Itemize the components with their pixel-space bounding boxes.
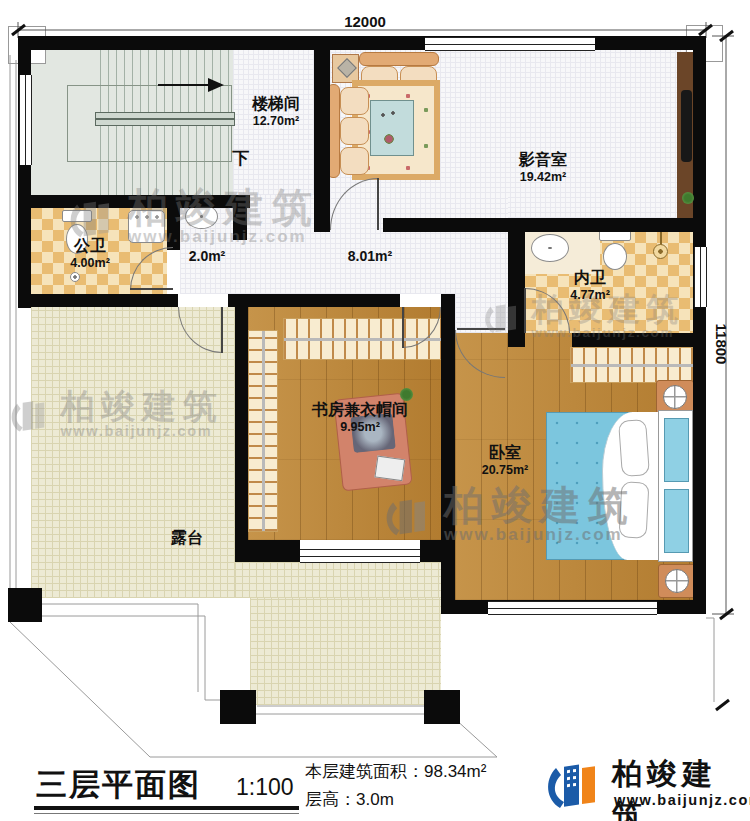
wall-top bbox=[18, 36, 706, 50]
wall-study-bottom-b bbox=[420, 540, 455, 562]
window-media-top bbox=[425, 37, 595, 51]
terrace-column bbox=[8, 588, 42, 622]
wall-vanity-right bbox=[233, 195, 247, 240]
room-label-media: 影音室 19.42m² bbox=[488, 150, 598, 186]
inner-bath-door-leaf bbox=[524, 288, 526, 333]
keyboard-icon bbox=[374, 456, 405, 482]
room-label-stairwell: 楼梯间 12.70m² bbox=[232, 94, 320, 130]
tv-icon bbox=[681, 90, 692, 162]
media-room-door-leaf bbox=[377, 178, 379, 230]
terrace-floor-left bbox=[31, 307, 235, 598]
window-study-bottom bbox=[300, 549, 420, 563]
stair-down-label: 下 bbox=[228, 148, 254, 169]
brand-website: www.baijunjz.com bbox=[614, 792, 750, 808]
wall-inner-bath-bottom-a bbox=[508, 333, 525, 347]
terrace-column bbox=[424, 690, 460, 724]
window-inner-bath-right bbox=[694, 247, 707, 307]
armchair-cushion bbox=[340, 87, 369, 115]
plant-icon bbox=[682, 192, 694, 204]
plan-title: 三层平面图 bbox=[36, 764, 201, 806]
wall-inner-bath-left bbox=[508, 232, 525, 333]
wall-landing-media-divider bbox=[314, 50, 330, 232]
study-wardrobe-left bbox=[248, 330, 278, 532]
pillow bbox=[618, 419, 650, 477]
terrace-column bbox=[220, 690, 256, 724]
study-door-leaf bbox=[402, 307, 404, 348]
inner-toilet-bowl-icon bbox=[603, 243, 627, 270]
armchair-cushion bbox=[340, 117, 369, 145]
wall-inner-bath-bottom-b bbox=[572, 333, 706, 347]
window-bedroom-bottom bbox=[488, 601, 657, 615]
dimension-right: 11800 bbox=[714, 314, 730, 374]
wall-study-bottom-a bbox=[235, 540, 300, 562]
bedroom-wardrobe bbox=[570, 347, 695, 383]
bed-headboard bbox=[658, 410, 693, 562]
brand-name: 柏竣建筑 bbox=[612, 754, 750, 821]
coffee-table bbox=[370, 100, 414, 156]
area-label-vanity: 2.0m² bbox=[178, 248, 236, 266]
area-label-hallway: 8.01m² bbox=[332, 248, 408, 266]
pillow bbox=[619, 481, 650, 538]
window-stairwell-left bbox=[19, 75, 32, 165]
terrace-floor-bottom bbox=[250, 598, 441, 705]
title-underline-thin bbox=[34, 813, 299, 814]
sofa-back-top bbox=[359, 52, 439, 66]
wall-media-bottom bbox=[383, 218, 706, 232]
wall-public-bath-right bbox=[167, 195, 180, 250]
nightstand bbox=[656, 380, 694, 414]
dimension-top: 12000 bbox=[330, 13, 400, 31]
room-label-bedroom: 卧室 20.75m² bbox=[455, 443, 555, 479]
title-underline bbox=[34, 806, 299, 810]
stair-direction-line bbox=[158, 84, 210, 86]
headboard-cushion bbox=[664, 489, 689, 553]
floor-drain-icon bbox=[70, 272, 80, 282]
washing-machine-icon bbox=[128, 210, 165, 243]
shower-head-icon bbox=[653, 244, 668, 259]
public-bath-door-leaf bbox=[130, 288, 173, 290]
stair-handrail bbox=[95, 112, 235, 126]
wall-stair-bottom bbox=[18, 195, 250, 208]
floor-plan-canvas: 12000 11800 bbox=[0, 0, 750, 821]
wall-study-left bbox=[235, 294, 248, 562]
table-lamp-icon bbox=[665, 569, 689, 593]
plan-scale: 1:100 bbox=[236, 774, 294, 801]
bedroom-door-leaf bbox=[457, 328, 505, 330]
table-lamp-icon bbox=[663, 385, 687, 409]
room-label-public-bath: 公卫 4.00m² bbox=[58, 236, 122, 272]
room-label-inner-bath: 内卫 4.77m² bbox=[550, 268, 630, 304]
floor-area-text: 本层建筑面积：98.34m² bbox=[305, 760, 486, 783]
terrace-floor-mid bbox=[235, 562, 441, 598]
headboard-cushion bbox=[664, 418, 689, 482]
armchair-cushion bbox=[340, 147, 369, 175]
nightstand bbox=[658, 564, 696, 598]
wall-hall-bottom-b bbox=[228, 294, 400, 307]
brand-logo-icon bbox=[540, 750, 606, 814]
wall-hall-bottom-a bbox=[18, 294, 178, 307]
terrace-door-leaf bbox=[221, 307, 223, 353]
inner-bath-sink-icon bbox=[531, 234, 569, 262]
wall-right bbox=[693, 36, 706, 614]
wall-study-right bbox=[441, 294, 455, 562]
room-label-study: 书房兼衣帽间 9.95m² bbox=[295, 400, 425, 436]
floor-height-text: 层高：3.0m bbox=[305, 788, 394, 811]
toilet-tank-icon bbox=[62, 210, 92, 222]
stair-arrow-icon bbox=[208, 78, 224, 92]
room-label-terrace: 露台 bbox=[155, 528, 219, 548]
